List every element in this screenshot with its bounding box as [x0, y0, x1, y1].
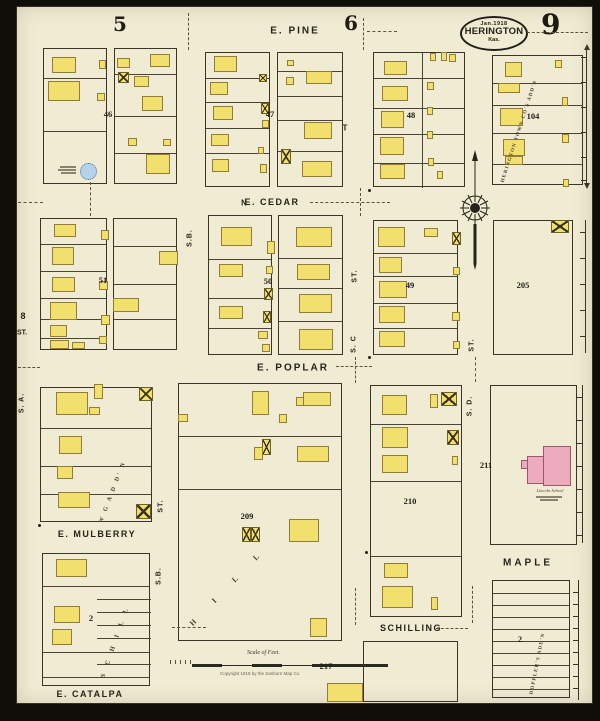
dashed-line — [472, 586, 473, 623]
section-tick — [577, 420, 582, 421]
building-frame — [382, 586, 413, 608]
section-tick — [581, 107, 586, 108]
lot-line — [209, 298, 271, 299]
lot-line — [374, 303, 457, 304]
building-frame — [381, 111, 404, 128]
building-frame — [297, 446, 329, 462]
building-crossed — [259, 74, 267, 82]
building-crossed — [139, 387, 153, 401]
lot-line — [44, 78, 106, 79]
street-label: E. MULBERRY — [58, 529, 136, 539]
lot-line — [114, 246, 176, 247]
building-frame — [134, 76, 149, 87]
section-tick — [581, 180, 586, 181]
dashed-line — [527, 32, 588, 33]
building-frame — [380, 137, 404, 155]
lot-line — [493, 665, 569, 666]
building-frame — [142, 96, 163, 111]
building-frame — [498, 83, 520, 93]
lot-line — [493, 593, 569, 594]
building-frame — [97, 93, 105, 101]
lot-line — [493, 105, 582, 106]
block-outline — [363, 641, 458, 702]
building-frame — [452, 456, 458, 465]
water-tank — [80, 163, 97, 180]
building-frame — [267, 241, 275, 254]
block-number: 2 — [518, 634, 522, 644]
block-number: 205 — [517, 280, 530, 290]
lot-line — [41, 338, 106, 339]
street-label: S.B. — [187, 229, 194, 247]
lot-line — [43, 586, 149, 587]
lot-line — [374, 134, 464, 135]
building-frame — [52, 57, 76, 73]
lot-line — [206, 102, 269, 103]
building-frame — [428, 158, 434, 166]
map-city: HERINGTON — [462, 27, 526, 37]
corner-dot — [368, 189, 371, 192]
building-frame — [505, 62, 522, 77]
lot-line — [493, 605, 569, 606]
building-frame — [48, 81, 80, 101]
street-label: MAPLE — [503, 558, 553, 569]
building-crossed — [551, 220, 569, 233]
street-label: S. A. — [19, 393, 26, 413]
map-state: Kas. — [462, 37, 526, 43]
building-frame — [378, 227, 405, 247]
block-outline — [493, 220, 573, 355]
building-frame — [299, 294, 332, 313]
building-frame — [310, 618, 327, 637]
lot-line — [97, 638, 151, 639]
building-frame — [427, 107, 433, 115]
building-frame — [50, 302, 77, 320]
building-frame — [57, 466, 73, 479]
section-tick — [580, 310, 585, 311]
building-frame — [453, 267, 460, 275]
section-tick — [580, 336, 585, 337]
section-tick — [580, 284, 585, 285]
section-tick — [580, 232, 585, 233]
building-frame — [297, 264, 330, 280]
building-frame — [296, 227, 332, 247]
dashed-line — [336, 366, 372, 367]
building-frame — [56, 392, 88, 415]
building-frame — [304, 122, 332, 139]
building-frame — [101, 315, 110, 325]
dashed-line — [355, 357, 356, 383]
lot-line — [278, 96, 342, 97]
building-frame — [56, 559, 87, 577]
section-tick — [573, 604, 578, 605]
street-label: ST. — [158, 499, 165, 512]
building-frame — [382, 86, 408, 101]
street-label: N — [241, 199, 247, 208]
building-frame — [58, 492, 90, 508]
street-label: T — [343, 124, 348, 133]
section-tick — [573, 640, 578, 641]
building-frame — [379, 331, 405, 347]
building-frame — [279, 414, 287, 423]
section-tick — [573, 676, 578, 677]
lot-line — [209, 259, 271, 260]
lot-line — [41, 298, 106, 299]
lot-line — [41, 271, 106, 272]
building-frame — [210, 82, 228, 95]
building-frame — [286, 77, 294, 85]
dashed-line — [310, 202, 390, 203]
lot-line — [44, 131, 106, 132]
lot-line — [371, 556, 461, 557]
building-frame — [221, 227, 252, 246]
building-frame — [327, 683, 363, 702]
map-overlay: Jan.1918 HERINGTON Kas. 9 Scale of Feet.… — [0, 0, 600, 721]
building-frame — [266, 266, 273, 274]
building-frame — [252, 391, 269, 415]
scale-title: Scale of Feet. — [247, 650, 280, 656]
lot-line — [374, 108, 464, 109]
lot-line — [41, 244, 106, 245]
arrow-up-icon — [584, 44, 590, 50]
section-line — [578, 580, 579, 700]
building-frame — [214, 56, 237, 72]
lot-line — [179, 436, 341, 437]
building-frame — [163, 139, 171, 146]
section-tick — [573, 664, 578, 665]
building-crossed — [441, 392, 457, 406]
building-brick — [543, 446, 571, 486]
building-frame — [563, 179, 569, 187]
building-frame — [430, 394, 438, 408]
building-frame — [178, 414, 188, 422]
lot-line — [278, 120, 342, 121]
section-tick — [573, 688, 578, 689]
building-frame — [52, 277, 75, 292]
building-frame — [262, 120, 269, 128]
street-label: S. C — [351, 335, 358, 353]
building-frame — [54, 224, 76, 237]
building-frame — [379, 257, 402, 273]
section-tick — [573, 592, 578, 593]
block-number: 211 — [480, 460, 492, 470]
block-number: 50 — [264, 276, 273, 286]
building-frame — [382, 455, 408, 473]
section-tick — [581, 132, 586, 133]
building-frame — [302, 161, 332, 177]
building-frame — [219, 264, 243, 277]
dashed-line — [18, 367, 40, 368]
section-line — [586, 50, 587, 183]
section-tick — [581, 82, 586, 83]
building-frame — [380, 164, 405, 179]
street-label: ST. — [17, 330, 27, 337]
dashed-line — [355, 588, 356, 625]
lot-line — [114, 284, 176, 285]
building-frame — [453, 341, 460, 349]
building-crossed — [136, 504, 151, 519]
building-frame — [213, 106, 233, 120]
block-outline — [178, 383, 342, 641]
street-label: 8 — [20, 311, 25, 321]
title-oval: Jan.1918 HERINGTON Kas. — [460, 16, 528, 51]
building-frame — [437, 171, 443, 179]
street-label: SCHILLING — [380, 623, 442, 633]
building-frame — [50, 340, 69, 349]
lot-line — [493, 677, 569, 678]
block-number: 217 — [320, 661, 333, 671]
building-frame — [113, 298, 139, 312]
building-frame — [287, 60, 294, 66]
lot-line — [374, 328, 457, 329]
building-frame — [219, 306, 243, 319]
section-tick — [573, 616, 578, 617]
dashed-line — [18, 202, 43, 203]
building-frame — [99, 336, 107, 344]
building-crossed — [263, 311, 271, 323]
lot-line — [493, 617, 569, 618]
lot-line — [209, 328, 271, 329]
district-number: 5 — [113, 12, 127, 36]
street-label: ST. — [352, 269, 359, 282]
lot-line — [374, 78, 464, 79]
building-frame — [89, 407, 100, 415]
building-frame — [441, 52, 447, 61]
building-frame — [52, 629, 72, 645]
block-number: 51 — [99, 275, 108, 285]
building-crossed — [118, 72, 129, 83]
section-tick — [581, 57, 586, 58]
lot-line — [493, 653, 569, 654]
building-frame — [260, 164, 267, 173]
building-frame — [382, 395, 407, 415]
dashed-line — [188, 13, 189, 50]
building-frame — [299, 329, 333, 350]
lot-line — [114, 319, 176, 320]
dashed-line — [90, 182, 91, 216]
dashed-line — [367, 31, 397, 32]
building-crossed — [281, 149, 291, 164]
building-crossed — [264, 288, 273, 300]
building-frame — [54, 606, 80, 623]
copyright-line: Copyright 1918 by the Sanborn Map Co. — [220, 671, 301, 676]
building-frame — [303, 392, 331, 406]
building-frame — [128, 138, 137, 146]
section-tick — [577, 512, 582, 513]
section-tick — [580, 258, 585, 259]
dashed-line — [475, 357, 476, 382]
block-outline — [113, 218, 177, 350]
lot-line — [422, 53, 423, 188]
building-frame — [449, 54, 456, 62]
dashed-line — [436, 628, 468, 629]
street-label: E. CATALPA — [57, 689, 124, 699]
building-frame — [306, 71, 332, 84]
section-tick — [577, 489, 582, 490]
building-frame — [555, 60, 562, 68]
lot-line — [43, 677, 149, 678]
block-number: 210 — [404, 496, 417, 506]
building-frame — [258, 147, 264, 154]
building-frame — [427, 82, 434, 90]
lot-line — [97, 599, 151, 600]
sheet-number: 9 — [541, 8, 560, 41]
section-tick — [577, 443, 582, 444]
lot-line — [279, 288, 342, 289]
section-tick — [573, 652, 578, 653]
lot-line — [493, 641, 569, 642]
block-outline — [492, 580, 570, 698]
section-tick — [577, 535, 582, 536]
building-frame — [146, 154, 170, 174]
section-tick — [577, 397, 582, 398]
building-frame — [72, 342, 85, 349]
lot-line — [43, 652, 149, 653]
lot-line — [279, 258, 342, 259]
lot-line — [206, 128, 269, 129]
block-number: 46 — [104, 109, 113, 119]
lot-line — [374, 276, 457, 277]
block-number: 209 — [241, 511, 254, 521]
section-tick — [573, 628, 578, 629]
building-frame — [50, 325, 67, 337]
building-frame — [117, 58, 130, 68]
building-frame — [562, 134, 569, 143]
section-tick — [581, 157, 586, 158]
block-number: 48 — [407, 110, 416, 120]
building-brick — [521, 460, 528, 469]
building-crossed — [242, 527, 251, 542]
building-frame — [382, 427, 408, 448]
building-frame — [424, 228, 438, 237]
lot-line — [279, 321, 342, 322]
street-label: E. CEDAR — [244, 197, 299, 207]
building-crossed — [452, 232, 461, 245]
section-line — [582, 385, 583, 543]
lot-line — [371, 424, 461, 425]
street-label: E. PINE — [270, 26, 320, 37]
building-frame — [289, 519, 319, 542]
lot-line — [115, 116, 176, 117]
building-frame — [212, 159, 229, 172]
building-frame — [150, 54, 170, 67]
building-frame — [562, 97, 568, 106]
section-line — [585, 220, 586, 353]
block-number: 2 — [89, 613, 93, 623]
corner-dot — [38, 524, 41, 527]
building-frame — [59, 436, 82, 454]
street-label: S. D. — [467, 396, 474, 417]
building-frame — [254, 447, 263, 460]
dashed-line — [360, 188, 361, 216]
building-crossed — [262, 439, 271, 455]
building-frame — [427, 131, 433, 139]
section-tick — [577, 466, 582, 467]
corner-dot — [365, 551, 368, 554]
lot-line — [41, 428, 151, 429]
lot-line — [371, 481, 461, 482]
building-frame — [452, 312, 460, 321]
building-crossed — [447, 430, 459, 445]
corner-dot — [368, 356, 371, 359]
district-number: 6 — [344, 11, 358, 35]
building-frame — [101, 230, 109, 240]
building-frame — [384, 563, 408, 578]
building-frame — [262, 344, 270, 352]
building-frame — [258, 331, 268, 339]
building-frame — [384, 61, 407, 75]
block-number: 104 — [527, 111, 540, 121]
block-number: 47 — [266, 109, 275, 119]
building-frame — [211, 134, 229, 146]
building-frame — [99, 60, 106, 69]
building-frame — [52, 247, 74, 265]
building-frame — [159, 251, 178, 265]
street-label: ST. — [469, 338, 476, 351]
lot-line — [179, 489, 341, 490]
building-frame — [379, 306, 405, 323]
dashed-line — [172, 627, 206, 628]
block-number: 49 — [406, 280, 415, 290]
building-frame — [94, 384, 103, 399]
street-label: S.B. — [156, 567, 163, 585]
lot-line — [493, 629, 569, 630]
arrow-down-icon — [584, 183, 590, 189]
street-label: E. POPLAR — [257, 363, 329, 374]
building-frame — [431, 597, 438, 610]
lot-line — [374, 253, 457, 254]
building-frame — [379, 281, 407, 298]
building-crossed — [251, 527, 260, 542]
building-frame — [430, 53, 436, 61]
dashed-line — [363, 18, 364, 50]
